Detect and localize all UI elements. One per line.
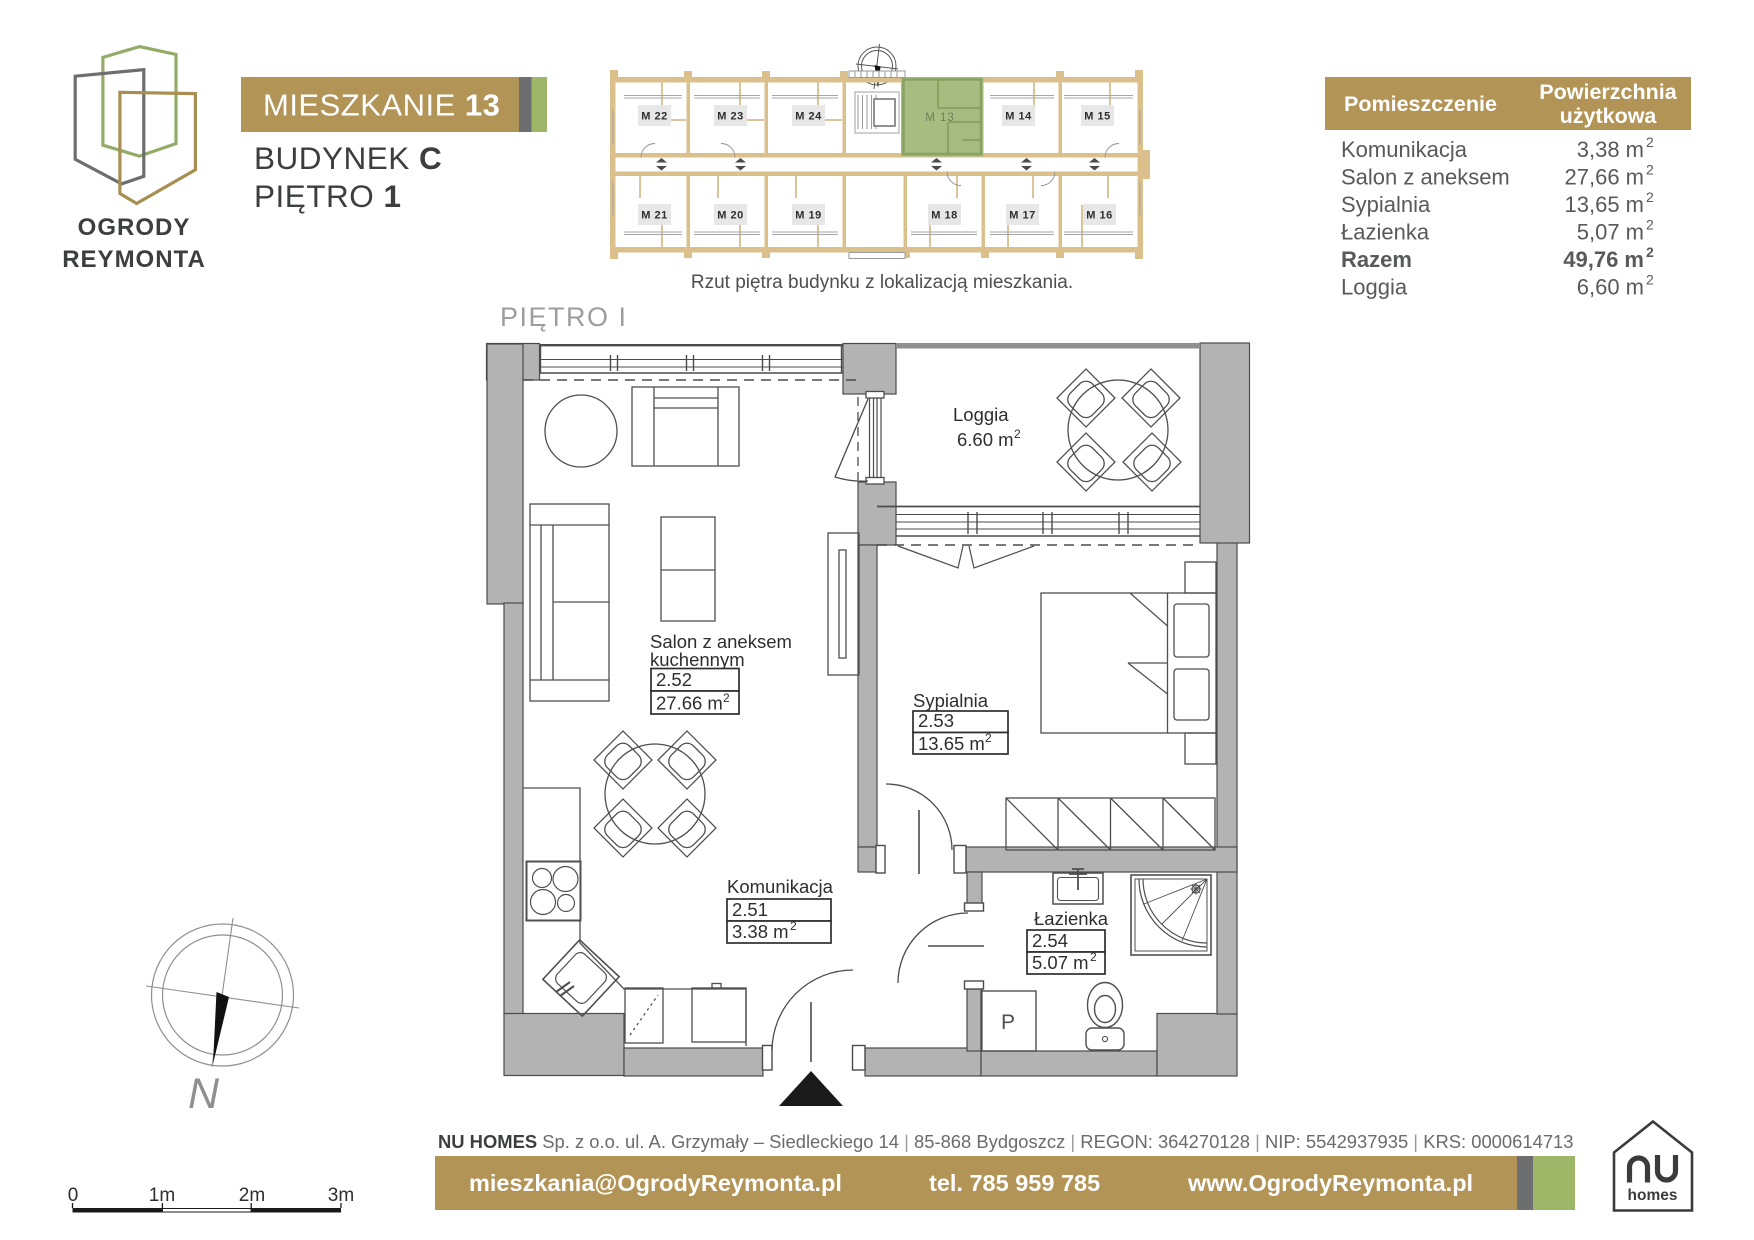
svg-text:2: 2 — [1090, 950, 1097, 964]
svg-text:Łazienka: Łazienka — [1034, 908, 1109, 929]
svg-text:2: 2 — [1646, 244, 1654, 260]
svg-text:Loggia: Loggia — [1341, 275, 1408, 300]
svg-text:2: 2 — [1646, 162, 1654, 178]
svg-text:M 15: M 15 — [1084, 111, 1110, 123]
svg-text:REYMONTA: REYMONTA — [62, 246, 206, 273]
svg-text:2: 2 — [790, 919, 797, 933]
svg-text:3m: 3m — [328, 1185, 354, 1206]
svg-text:2: 2 — [985, 731, 992, 745]
svg-text:MIESZKANIE 13: MIESZKANIE 13 — [263, 88, 500, 123]
svg-text:OGRODY: OGRODY — [78, 214, 191, 241]
svg-text:N: N — [188, 1070, 220, 1118]
svg-text:Komunikacja: Komunikacja — [1341, 137, 1468, 162]
svg-text:BUDYNEK C: BUDYNEK C — [254, 140, 442, 176]
svg-text:M 24: M 24 — [795, 111, 822, 123]
svg-text:M 23: M 23 — [717, 111, 743, 123]
svg-text:2.53: 2.53 — [918, 710, 954, 731]
svg-text:homes: homes — [1628, 1187, 1678, 1204]
svg-text:M 13: M 13 — [925, 112, 955, 124]
svg-text:2.51: 2.51 — [732, 899, 768, 920]
svg-text:M 21: M 21 — [641, 210, 667, 222]
svg-text:M 17: M 17 — [1009, 210, 1035, 222]
svg-text:1m: 1m — [149, 1185, 175, 1206]
svg-text:2: 2 — [1646, 217, 1654, 233]
svg-text:2.54: 2.54 — [1032, 930, 1068, 951]
svg-text:P: P — [1001, 1011, 1015, 1034]
svg-text:M 18: M 18 — [931, 210, 957, 222]
svg-text:PIĘTRO 1: PIĘTRO 1 — [254, 178, 402, 214]
svg-text:27,66 m: 27,66 m — [1565, 165, 1645, 190]
svg-text:49,76 m: 49,76 m — [1563, 247, 1644, 272]
svg-text:2: 2 — [1014, 427, 1021, 441]
svg-text:2: 2 — [723, 691, 730, 705]
svg-text:M 14: M 14 — [1005, 111, 1032, 123]
svg-text:użytkowa: użytkowa — [1560, 104, 1658, 128]
svg-text:M 22: M 22 — [641, 111, 667, 123]
svg-text:tel. 785 959 785: tel. 785 959 785 — [929, 1170, 1100, 1196]
svg-text:PIĘTRO I: PIĘTRO I — [500, 302, 628, 332]
svg-text:mieszkania@OgrodyReymonta.pl: mieszkania@OgrodyReymonta.pl — [469, 1170, 842, 1196]
svg-text:Rzut piętra budynku z lokaliza: Rzut piętra budynku z lokalizacją mieszk… — [691, 272, 1073, 293]
svg-text:3.38 m: 3.38 m — [732, 921, 789, 942]
svg-text:M 16: M 16 — [1086, 210, 1112, 222]
svg-text:Pomieszczenie: Pomieszczenie — [1344, 92, 1497, 116]
svg-text:6,60 m: 6,60 m — [1577, 275, 1644, 300]
svg-text:www.OgrodyReymonta.pl: www.OgrodyReymonta.pl — [1187, 1170, 1473, 1196]
svg-text:13.65 m: 13.65 m — [918, 733, 985, 754]
svg-text:NU HOMES Sp. z o.o. ul. A. Gr: NU HOMES Sp. z o.o. ul. A. Grzymały – Si… — [438, 1131, 1574, 1152]
svg-text:M 20: M 20 — [717, 210, 743, 222]
svg-text:Sypialnia: Sypialnia — [1341, 192, 1431, 217]
svg-text:M 19: M 19 — [795, 210, 821, 222]
svg-text:2m: 2m — [239, 1185, 265, 1206]
svg-text:6.60 m: 6.60 m — [957, 429, 1014, 450]
svg-text:Komunikacja: Komunikacja — [727, 876, 834, 897]
svg-text:Loggia: Loggia — [953, 404, 1009, 425]
svg-text:2: 2 — [1646, 272, 1654, 288]
svg-text:Razem: Razem — [1341, 247, 1412, 272]
svg-text:13,65 m: 13,65 m — [1565, 192, 1645, 217]
svg-text:0: 0 — [68, 1185, 79, 1206]
svg-text:2: 2 — [1646, 134, 1654, 150]
svg-text:2: 2 — [1646, 189, 1654, 205]
svg-text:kuchennym: kuchennym — [650, 649, 745, 670]
svg-text:2.52: 2.52 — [656, 669, 692, 690]
svg-text:Sypialnia: Sypialnia — [913, 690, 989, 711]
svg-text:5.07 m: 5.07 m — [1032, 952, 1089, 973]
svg-text:3,38 m: 3,38 m — [1577, 137, 1644, 162]
svg-text:5,07 m: 5,07 m — [1577, 220, 1644, 245]
svg-text:Salon z aneksem: Salon z aneksem — [1341, 165, 1510, 190]
svg-text:Łazienka: Łazienka — [1341, 220, 1430, 245]
svg-text:Powierzchnia: Powierzchnia — [1539, 80, 1677, 104]
svg-text:27.66 m: 27.66 m — [656, 693, 723, 714]
